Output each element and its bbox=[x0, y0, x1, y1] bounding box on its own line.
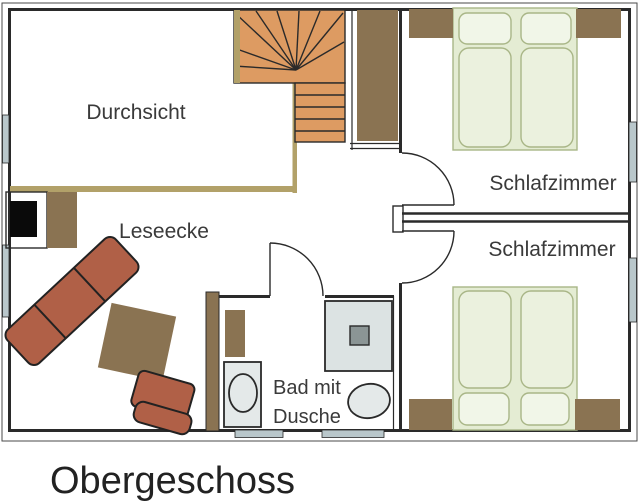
sink-basin bbox=[229, 374, 257, 412]
stair-stringer bbox=[234, 10, 240, 83]
stair-flight bbox=[295, 83, 345, 142]
window bbox=[629, 122, 637, 182]
chimney-block bbox=[47, 192, 77, 248]
mattress bbox=[459, 291, 511, 388]
shower-drain bbox=[350, 326, 369, 345]
room-label-bedroom-top: Schlafzimmer bbox=[489, 172, 616, 195]
stove bbox=[10, 201, 37, 237]
hallway-closet bbox=[357, 10, 398, 141]
nightstand bbox=[575, 399, 620, 430]
window bbox=[322, 430, 384, 438]
gallery-railing-horizontal bbox=[10, 186, 295, 192]
bed-bottom-bedroom bbox=[453, 287, 577, 430]
floor-plan: Durchsicht Leseecke Schlafzimmer Schlafz… bbox=[0, 0, 640, 501]
nightstand bbox=[409, 399, 452, 430]
pillow bbox=[521, 13, 571, 44]
window bbox=[3, 115, 10, 163]
pillow bbox=[521, 393, 569, 425]
stair-winder bbox=[234, 10, 345, 83]
room-label-gallery: Durchsicht bbox=[86, 101, 185, 124]
bath-cabinet bbox=[225, 310, 245, 357]
window bbox=[235, 430, 283, 438]
mattress bbox=[521, 48, 573, 147]
coffee-table bbox=[98, 303, 176, 381]
nightstand bbox=[409, 9, 453, 38]
pillow bbox=[459, 13, 511, 44]
mattress bbox=[521, 291, 573, 388]
bathroom-wall bbox=[206, 292, 219, 431]
bed-top-bedroom bbox=[453, 8, 577, 150]
room-label-bathroom-line1: Bad mit bbox=[273, 377, 341, 399]
room-label-bathroom-line2: Dusche bbox=[273, 406, 341, 428]
window bbox=[3, 245, 10, 317]
window bbox=[629, 258, 637, 322]
floor-plan-page: Durchsicht Leseecke Schlafzimmer Schlafz… bbox=[0, 0, 640, 501]
floor-title: Obergeschoss bbox=[50, 460, 295, 501]
pillow bbox=[459, 393, 509, 425]
nightstand bbox=[576, 9, 621, 38]
mattress bbox=[459, 48, 511, 147]
room-label-bedroom-bottom: Schlafzimmer bbox=[488, 238, 615, 261]
room-label-reading-corner: Leseecke bbox=[119, 220, 209, 243]
